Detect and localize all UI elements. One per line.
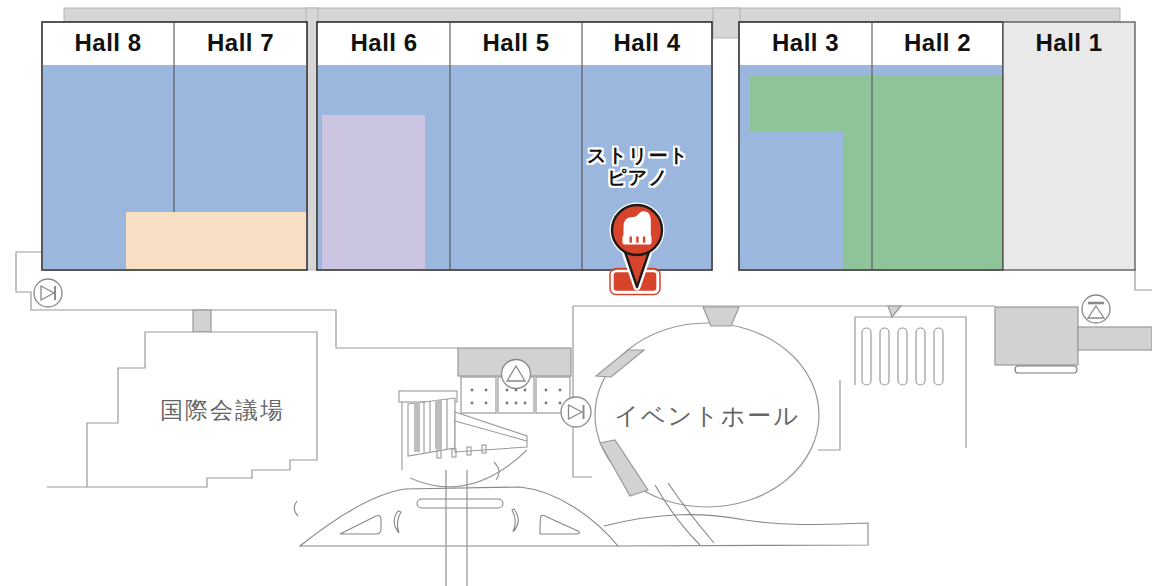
hall-6-area <box>318 22 450 270</box>
venue-floor-map: Hall 8 Hall 7 Hall 6 Hall 5 Hall 4 Hall … <box>0 0 1152 586</box>
event-hall-building <box>573 306 840 507</box>
south-plaza <box>294 470 868 586</box>
hall-5-area <box>450 22 582 270</box>
escalator-capsules <box>862 328 943 385</box>
hall-2-area <box>872 22 1003 270</box>
hall-4-area <box>582 22 712 270</box>
hall-1-area <box>1003 22 1135 270</box>
walkway-strip-east <box>713 8 740 38</box>
hall-3-area <box>739 22 872 270</box>
east-wing <box>855 307 1152 448</box>
escalator-icon <box>1082 295 1110 323</box>
hall-8-area <box>42 22 174 270</box>
gate-icon-center <box>561 397 591 427</box>
conference-center-building <box>47 332 317 487</box>
triangle-up-icon <box>502 360 531 389</box>
hall-7-area <box>174 22 307 270</box>
gate-icon-northwest <box>34 279 62 307</box>
conference-connector <box>193 310 211 332</box>
